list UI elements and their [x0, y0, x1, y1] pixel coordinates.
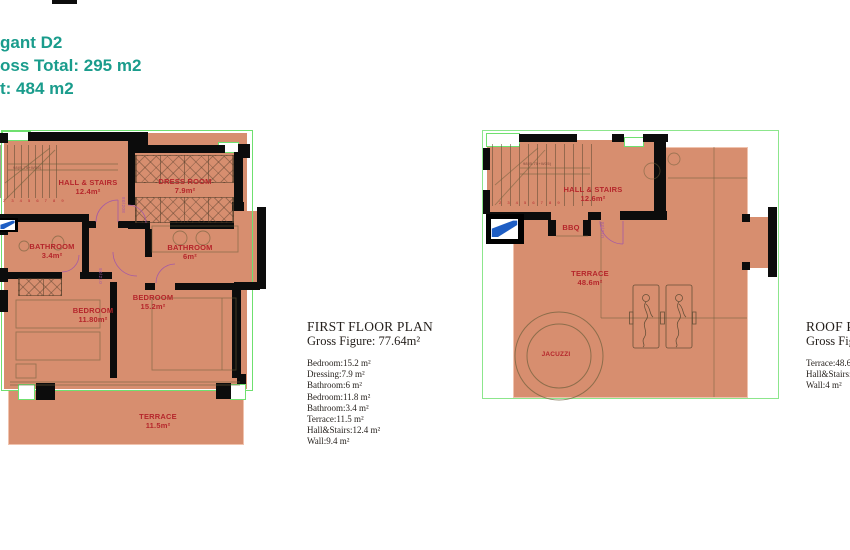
plan-heading: gant D2 oss Total: 295 m2 t: 484 m2 — [0, 31, 141, 100]
room-label-bedroom-right: BEDROOM 15.2m² — [108, 293, 198, 311]
info-item: Terrace:48.6 — [806, 358, 850, 369]
door-label: 90/210 — [98, 268, 103, 284]
cut-mark — [52, 0, 77, 4]
roof-info: ROOF PLA Gross Figu Terrace:48.6 Hall&St… — [806, 320, 850, 392]
room-label-dress-room: DRESS ROOM 7.9m² — [140, 177, 230, 195]
info-title: FIRST FLOOR PLAN — [307, 320, 467, 334]
floorplan-sheet: gant D2 oss Total: 295 m2 t: 484 m2 — [0, 0, 850, 550]
info-gross: Gross Figure: 77.64m² — [307, 334, 467, 348]
info-item: Hall&Stairs:1 — [806, 369, 850, 380]
first-floor-info: FIRST FLOOR PLAN Gross Figure: 77.64m² B… — [307, 320, 467, 448]
loungers — [630, 285, 697, 348]
heading-line-gross-total: oss Total: 295 m2 — [0, 54, 141, 77]
info-item: Bedroom:11.8 m² — [307, 392, 467, 403]
heading-line-model: gant D2 — [0, 31, 141, 54]
info-gross: Gross Figu — [806, 334, 850, 348]
roof-annotations-svg — [480, 128, 790, 403]
info-item: Hall&Stairs:12.4 m² — [307, 425, 467, 436]
info-item: Bathroom:3.4 m² — [307, 403, 467, 414]
heading-line-plot: t: 484 m2 — [0, 77, 141, 100]
room-label-terrace: TERRACE 11.5m² — [113, 412, 203, 430]
info-item: Wall:4 m² — [806, 380, 850, 391]
info-item: Wall:9.4 m² — [307, 436, 467, 447]
door-label: 80/208 — [121, 197, 126, 213]
room-label-jacuzzi: JACUZZI — [526, 351, 586, 359]
room-label-bathroom-small: BATHROOM 3.4m² — [7, 242, 97, 260]
info-item: Dressing:7.9 m² — [307, 369, 467, 380]
person-figure — [676, 295, 687, 348]
room-label-terrace: TERRACE 48.6m² — [545, 269, 635, 287]
info-item: Bathroom:6 m² — [307, 380, 467, 391]
room-label-hall-stairs: HALL & STAIRS 12.4m² — [43, 178, 133, 196]
info-list: Terrace:48.6 Hall&Stairs:1 Wall:4 m² — [806, 358, 850, 392]
info-item: Bedroom:15.2 m² — [307, 358, 467, 369]
room-label-bathroom: BATHROOM 6m² — [145, 243, 235, 261]
room-label-hall-stairs: HALL & STAIRS 12.6m² — [548, 185, 638, 203]
door-label: 80/210 — [600, 222, 605, 238]
person-figure — [643, 295, 654, 348]
info-list: Bedroom:15.2 m² Dressing:7.9 m² Bathroom… — [307, 358, 467, 448]
room-label-bbq: BBQ — [551, 223, 591, 232]
info-title: ROOF PLA — [806, 320, 850, 334]
info-item: Terrace:11.5 m² — [307, 414, 467, 425]
